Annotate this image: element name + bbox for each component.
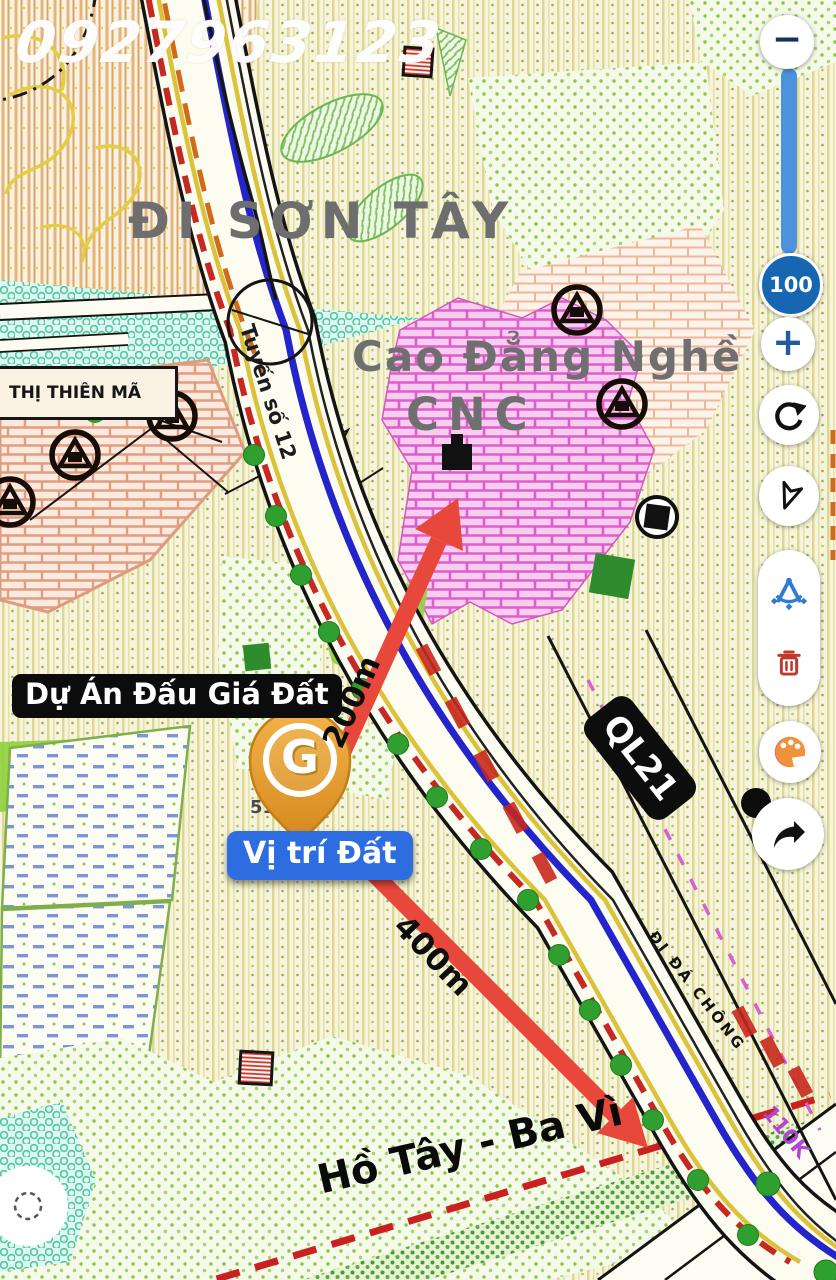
- rotate-button[interactable]: [759, 385, 819, 445]
- direction-label-son-tay: ĐI SƠN TÂY: [128, 192, 515, 250]
- map-screen: 0927963123 ĐI SƠN TÂY THỊ THIÊN MÃ Cao Đ…: [0, 0, 836, 1280]
- measure-button[interactable]: [767, 571, 811, 615]
- trash-icon: [772, 646, 806, 680]
- share-button[interactable]: [752, 798, 824, 870]
- delete-button[interactable]: [767, 641, 811, 685]
- zoom-out-button[interactable]: −: [760, 15, 814, 69]
- college-name-label: Cao Đẳng Nghề: [352, 332, 742, 381]
- phone-watermark: 0927963123: [12, 10, 447, 76]
- zoom-level-value: 100: [769, 273, 813, 297]
- college-abbr-label: CNC: [406, 388, 537, 441]
- tool-pill: [758, 550, 820, 706]
- project-label: Dự Án Đấu Giá Đất: [12, 674, 342, 718]
- share-arrow-icon: [768, 814, 808, 854]
- minus-icon: −: [772, 22, 802, 58]
- plus-icon: +: [772, 323, 804, 361]
- my-location-button[interactable]: [759, 466, 819, 526]
- zoom-in-button[interactable]: +: [761, 317, 815, 371]
- marker-letter: G: [281, 730, 319, 784]
- zoom-slider[interactable]: [781, 68, 797, 254]
- rotate-arrow-icon: [772, 398, 806, 432]
- palette-icon: [771, 733, 809, 771]
- drafting-compass-icon: [770, 574, 808, 612]
- urban-area-label: THỊ THIÊN MÃ: [0, 366, 178, 420]
- zoom-level-badge[interactable]: 100: [759, 253, 823, 317]
- navigation-arrow-icon: [772, 479, 806, 513]
- map-style-button[interactable]: [759, 721, 821, 783]
- location-label[interactable]: Vị trí Đất: [227, 831, 413, 880]
